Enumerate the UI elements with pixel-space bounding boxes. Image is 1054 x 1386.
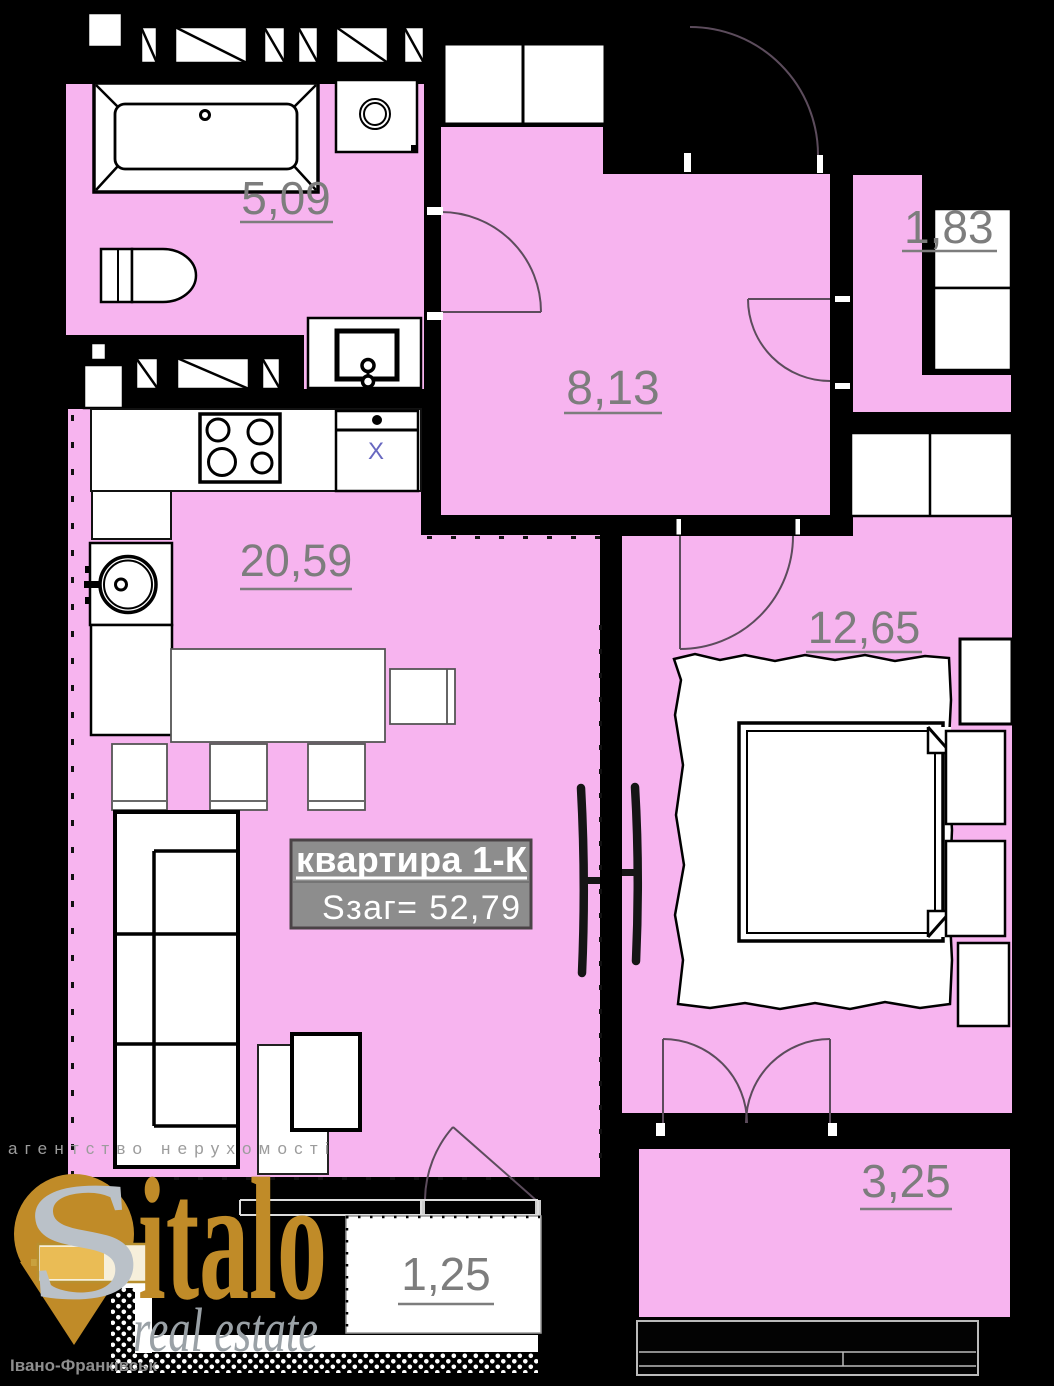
svg-text:Івано-Франківськ: Івано-Франківськ bbox=[10, 1356, 157, 1375]
svg-text:5,09: 5,09 bbox=[241, 172, 331, 224]
svg-text:S: S bbox=[16, 1144, 152, 1338]
svg-text:X: X bbox=[368, 438, 384, 465]
svg-text:1,83: 1,83 bbox=[904, 201, 994, 253]
svg-text:3,25: 3,25 bbox=[861, 1155, 951, 1207]
svg-text:real estate: real estate bbox=[133, 1297, 318, 1365]
svg-text:1,25: 1,25 bbox=[401, 1248, 491, 1300]
svg-text:8,13: 8,13 bbox=[566, 362, 659, 415]
svg-text:20,59: 20,59 bbox=[240, 535, 353, 586]
svg-text:Sзаг= 52,79: Sзаг= 52,79 bbox=[322, 889, 520, 927]
svg-text:квартира 1-К: квартира 1-К bbox=[296, 839, 528, 880]
svg-text:12,65: 12,65 bbox=[808, 602, 921, 653]
